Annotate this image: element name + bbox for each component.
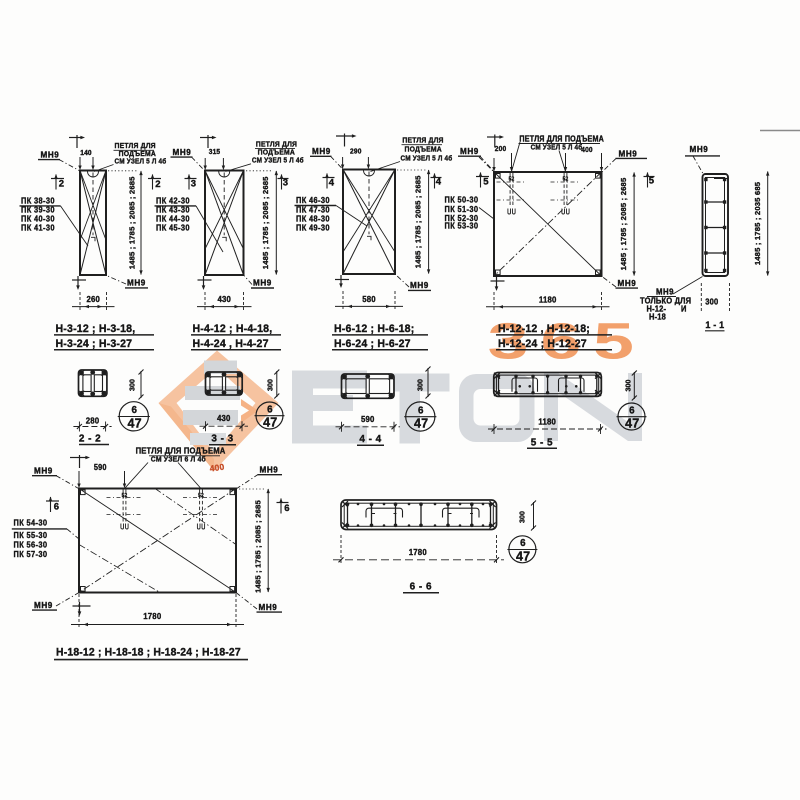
svg-text:5: 5 [649,176,655,187]
svg-text:Н-12-12 , Н-12-18;: Н-12-12 , Н-12-18; [498,323,590,335]
svg-text:47: 47 [263,416,277,430]
svg-text:300: 300 [129,379,136,391]
svg-text:СМ УЗЕЛ 5 Л 4б: СМ УЗЕЛ 5 Л 4б [531,143,583,151]
svg-text:4: 4 [436,177,442,188]
svg-text:47: 47 [414,417,428,431]
svg-text:Н-4-12 ; Н-4-18,: Н-4-12 ; Н-4-18, [193,323,273,335]
svg-text:МН9: МН9 [260,466,279,475]
svg-text:Н-4-24 , Н-4-27: Н-4-24 , Н-4-27 [193,337,269,349]
svg-text:СМ УЗЕЛ 5 Л 4б: СМ УЗЕЛ 5 Л 4б [252,156,304,164]
svg-text:280: 280 [86,416,100,425]
svg-text:МН9: МН9 [259,603,278,612]
svg-text:260: 260 [86,295,100,304]
svg-text:2: 2 [59,179,64,190]
svg-text:МН9: МН9 [410,281,429,290]
svg-text:300: 300 [705,297,719,306]
svg-text:ПК 55-30: ПК 55-30 [14,531,48,540]
svg-text:1 - 1: 1 - 1 [705,320,724,330]
svg-text:1180: 1180 [538,417,556,426]
svg-text:МН9: МН9 [253,279,272,288]
svg-text:МН9: МН9 [127,279,146,288]
svg-text:ПК 49-30: ПК 49-30 [296,223,330,232]
svg-text:6: 6 [54,502,59,513]
svg-text:2: 2 [155,179,160,190]
svg-text:ПК 54-30: ПК 54-30 [14,518,48,527]
svg-text:47: 47 [516,550,530,564]
svg-text:Н-18-12 ; Н-18-18 ; Н-18-24 ;: Н-18-12 ; Н-18-18 ; Н-18-24 ; Н-18-27 [56,646,241,658]
svg-text:430: 430 [217,414,231,423]
svg-text:5 - 5: 5 - 5 [531,437,553,448]
svg-text:6: 6 [520,538,526,549]
svg-text:400: 400 [581,147,593,154]
svg-text:МН9: МН9 [690,145,709,154]
svg-text:1485 ; 1785 ; 2085 ; 2685: 1485 ; 1785 ; 2085 ; 2685 [261,176,270,269]
svg-text:47: 47 [625,417,639,431]
svg-text:МН9: МН9 [34,601,53,610]
svg-text:Н-12-24 ; Н-12-27: Н-12-24 ; Н-12-27 [498,337,587,349]
svg-text:1780: 1780 [409,548,427,557]
svg-text:ПОДЪЕМА: ПОДЪЕМА [405,144,443,153]
svg-text:52: 52 [198,493,204,499]
svg-text:СМ УЗЕЛ 6 Л 4б: СМ УЗЕЛ 6 Л 4б [151,454,206,463]
svg-text:МН9: МН9 [618,279,637,288]
svg-text:52: 52 [122,493,128,499]
svg-text:МН9: МН9 [34,467,53,476]
svg-text:МН9: МН9 [173,148,192,157]
svg-text:Н-6-12 ; Н-6-18;: Н-6-12 ; Н-6-18; [334,323,414,335]
svg-text:1485 ; 1785 ; 2085 ; 2685: 1485 ; 1785 ; 2085 ; 2685 [253,500,262,593]
svg-text:1485 ; 1785 ; 2085 ; 2685: 1485 ; 1785 ; 2085 ; 2685 [414,175,423,268]
svg-text:МН9: МН9 [619,150,638,159]
svg-text:ПК 50-30: ПК 50-30 [445,195,479,204]
svg-text:6: 6 [267,404,273,415]
svg-text:300: 300 [417,379,424,391]
svg-text:47: 47 [127,417,141,431]
svg-text:ПК 53-30: ПК 53-30 [445,221,479,230]
svg-text:140: 140 [80,150,92,157]
svg-text:290: 290 [350,148,362,155]
svg-text:ПК 56-30: ПК 56-30 [14,540,48,549]
svg-text:Н-3-24 ; Н-3-27: Н-3-24 ; Н-3-27 [56,337,133,349]
svg-text:400: 400 [209,462,225,474]
svg-text:4: 4 [329,178,335,189]
svg-text:6: 6 [284,503,289,514]
svg-text:СМ УЗЕЛ 5 Л 4б: СМ УЗЕЛ 5 Л 4б [115,157,167,165]
svg-text:590: 590 [94,463,107,472]
svg-text:ПК 45-30: ПК 45-30 [156,223,190,232]
svg-text:590: 590 [361,415,375,424]
svg-text:ПК 46-30: ПК 46-30 [296,196,330,205]
svg-text:ПЕТЛЯ ДЛЯ ПОДЪЕМА: ПЕТЛЯ ДЛЯ ПОДЪЕМА [519,134,604,143]
svg-text:И: И [681,304,687,313]
svg-text:200: 200 [495,146,507,153]
svg-text:6: 6 [418,405,424,416]
svg-text:1485 ; 1785 ; 2085 ; 2685: 1485 ; 1785 ; 2085 ; 2685 [127,176,136,269]
svg-text:300: 300 [267,379,274,391]
svg-text:Н-18: Н-18 [649,312,666,321]
svg-text:1485 ; 1785 ; 2085 ; 2685: 1485 ; 1785 ; 2085 ; 2685 [619,177,628,270]
svg-text:1180: 1180 [539,295,557,304]
svg-text:ПК 57-30: ПК 57-30 [14,550,48,559]
svg-text:ПК 42-30: ПК 42-30 [156,196,190,205]
svg-text:1485 ; 1785 ; 2035 685: 1485 ; 1785 ; 2035 685 [753,181,762,265]
svg-text:МН9: МН9 [41,151,60,160]
svg-text:6: 6 [629,405,635,416]
svg-text:МН9: МН9 [460,147,479,156]
svg-text:СМ УЗЕЛ 5 Л 4б: СМ УЗЕЛ 5 Л 4б [401,154,453,162]
svg-text:3 - 3: 3 - 3 [211,433,233,444]
svg-text:6: 6 [131,405,137,416]
svg-text:МН9: МН9 [656,288,674,297]
svg-text:ПК 41-30: ПК 41-30 [21,223,55,232]
svg-text:ПК 38-30: ПК 38-30 [21,196,55,205]
svg-text:430: 430 [217,295,231,304]
svg-text:5: 5 [483,177,489,188]
svg-text:Н-6-24 ; Н-6-27: Н-6-24 ; Н-6-27 [334,337,411,349]
svg-text:2 - 2: 2 - 2 [79,433,101,444]
svg-text:1780: 1780 [143,612,161,621]
svg-text:300: 300 [625,380,632,392]
svg-text:МН9: МН9 [312,147,331,156]
svg-text:Н-3-12 ; Н-3-18,: Н-3-12 ; Н-3-18, [56,323,136,335]
svg-text:6 - 6: 6 - 6 [410,581,432,592]
svg-text:300: 300 [520,511,527,523]
svg-text:3: 3 [283,178,288,189]
svg-text:4 - 4: 4 - 4 [359,434,381,445]
svg-text:3: 3 [191,179,196,190]
svg-text:315: 315 [209,149,221,156]
svg-text:580: 580 [362,295,376,304]
